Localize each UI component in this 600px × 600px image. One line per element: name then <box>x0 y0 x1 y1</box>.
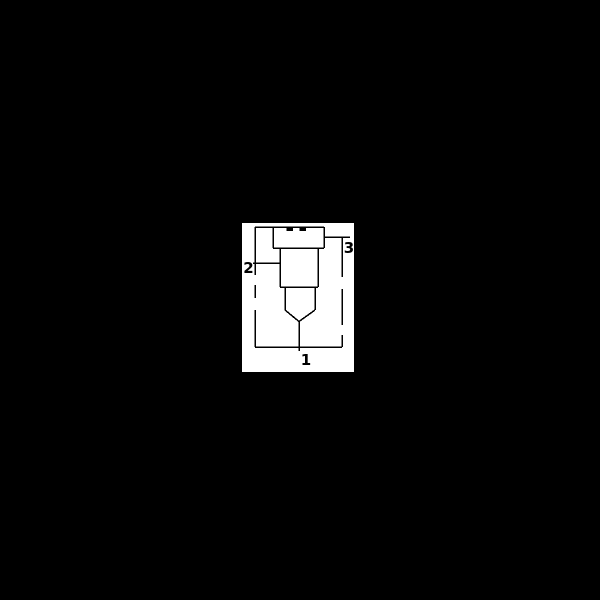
port-leader-lines <box>253 237 350 263</box>
port-2-label: 2 <box>243 259 253 277</box>
head-top-tick-left <box>287 227 294 231</box>
screen-background: 1 2 3 <box>0 0 600 600</box>
drawing-page: 1 2 3 <box>242 223 354 372</box>
port-3-label: 3 <box>344 239 354 257</box>
valve-body-outline <box>273 227 324 351</box>
head-top-tick-right <box>300 227 307 231</box>
port-1-label: 1 <box>301 351 311 369</box>
valve-symbol-drawing: 1 2 3 <box>242 223 354 372</box>
nose-cone-tip <box>285 310 315 322</box>
